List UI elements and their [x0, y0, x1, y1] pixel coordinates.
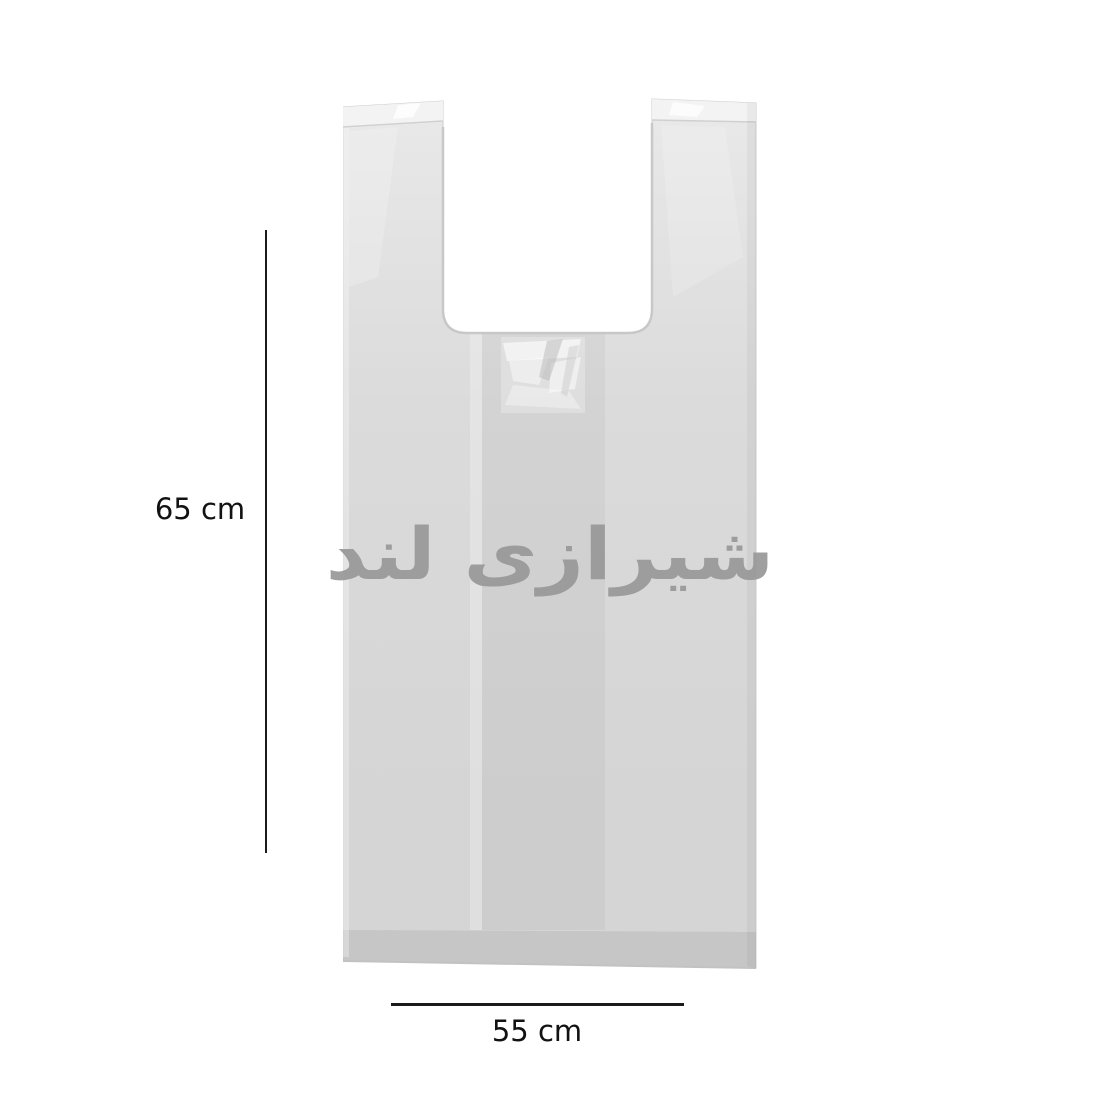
width-dimension-line: [391, 1003, 684, 1006]
watermark-logo: شیرازی لند: [326, 492, 774, 617]
height-dimension-line: [265, 230, 267, 853]
height-label: 65 cm: [150, 492, 250, 526]
bag-right-handle-fold: [652, 99, 756, 123]
width-label: 55 cm: [437, 1014, 637, 1048]
bag-center-panel: [482, 333, 605, 930]
bag-crinkle-patch: [501, 337, 585, 413]
bag-handle-cutout-shadow: [443, 123, 652, 333]
product-dimension-image: شیرازی لند 65 cm 55 cm: [0, 0, 1100, 1100]
bag-sheen-streak: [470, 333, 482, 930]
